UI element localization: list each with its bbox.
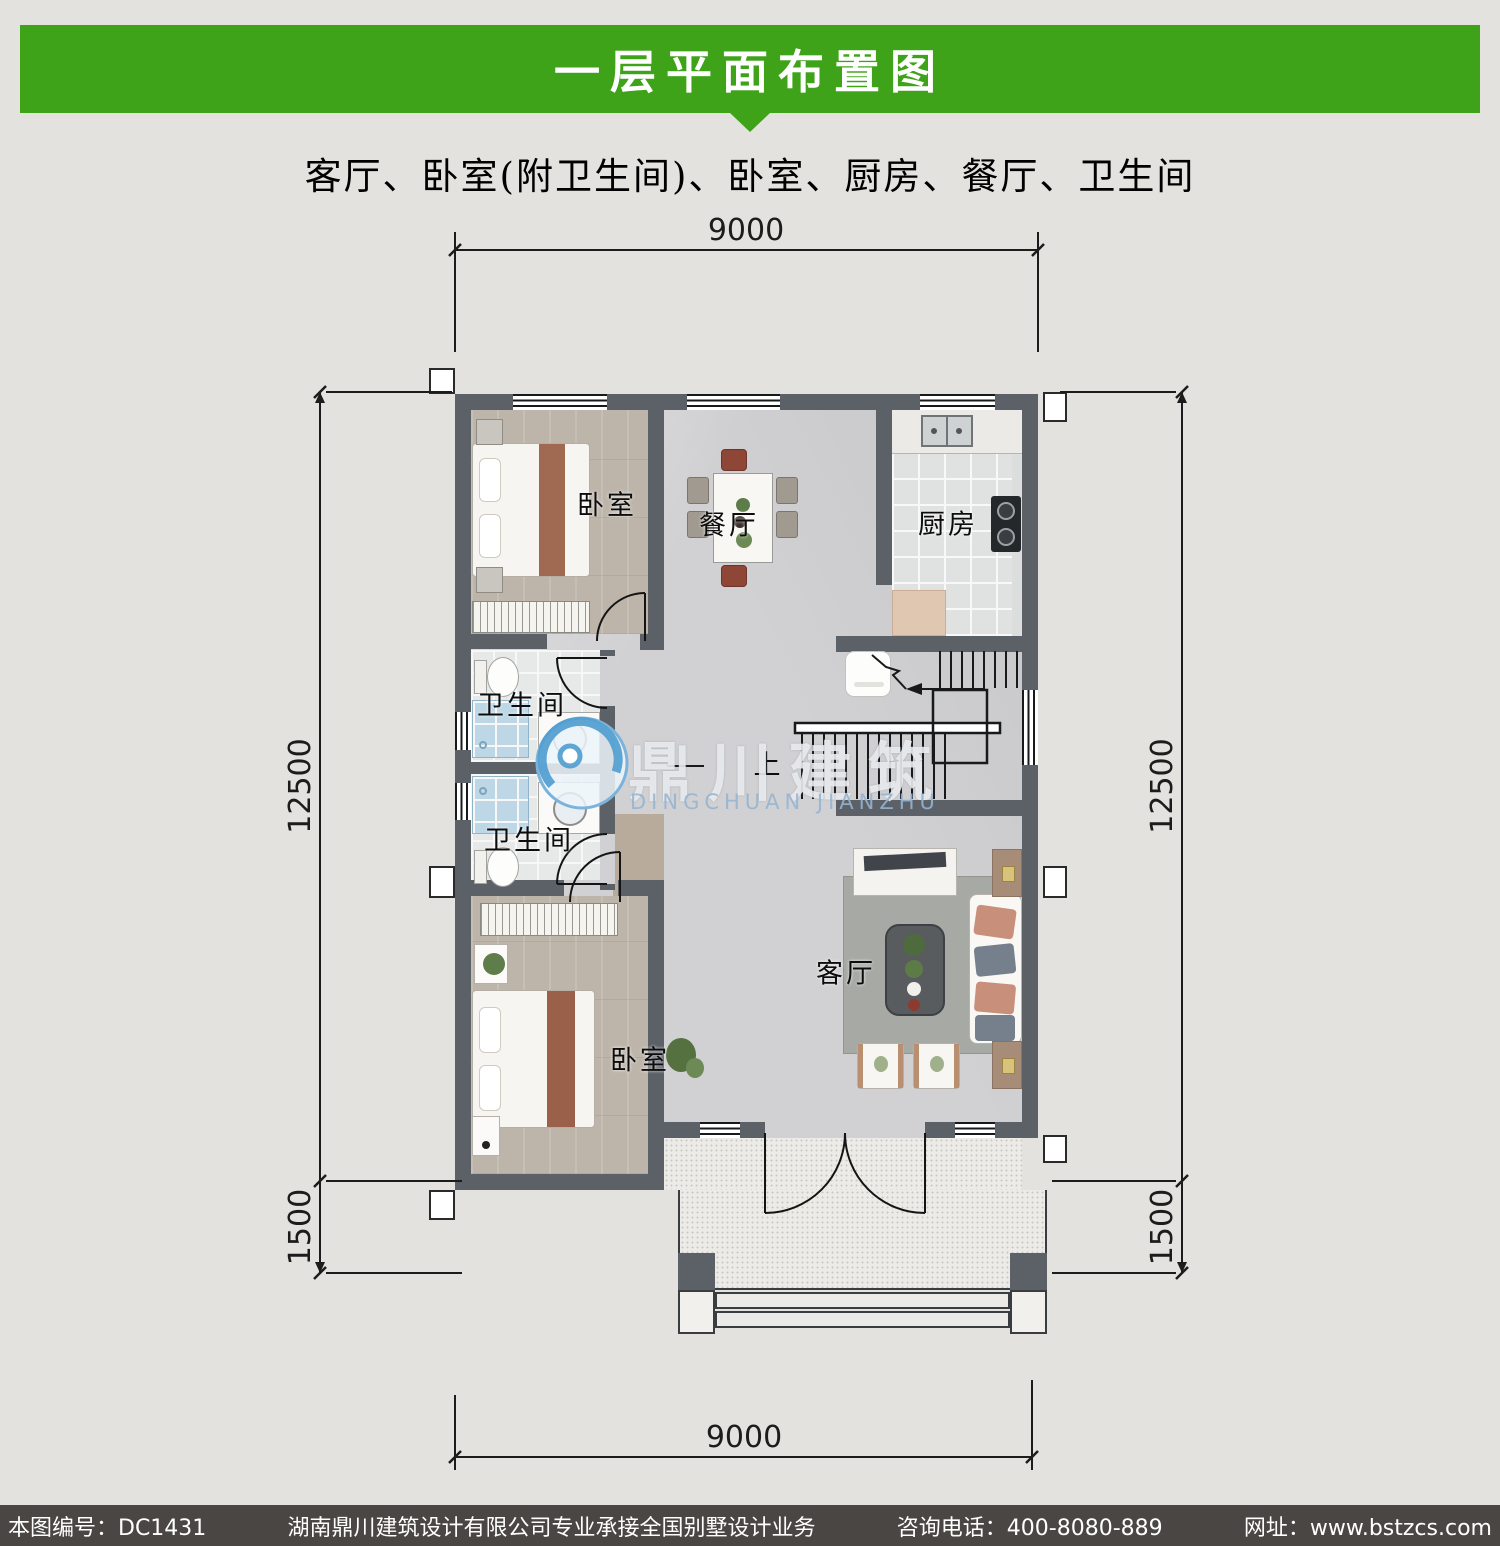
room-label-kitchen: 厨房 — [918, 503, 978, 542]
room-label-bedroom-bottom: 卧室 — [610, 1039, 670, 1078]
room-label-bath-lower: 卫生间 — [484, 819, 574, 858]
floor-plan-sheet: 一层平面布置图 客厅、卧室(附卫生间)、卧室、厨房、餐厅、卫生间 — [0, 0, 1500, 1546]
room-label-dining: 餐厅 — [699, 504, 759, 543]
room-label-living: 客厅 — [816, 952, 876, 991]
room-label-bath-upper: 卫生间 — [477, 684, 567, 723]
watermark-logo-dot — [560, 746, 580, 766]
watermark-company-en: DINGCHUAN JIANZHU — [630, 790, 940, 814]
room-label-bedroom-top: 卧室 — [577, 484, 637, 523]
